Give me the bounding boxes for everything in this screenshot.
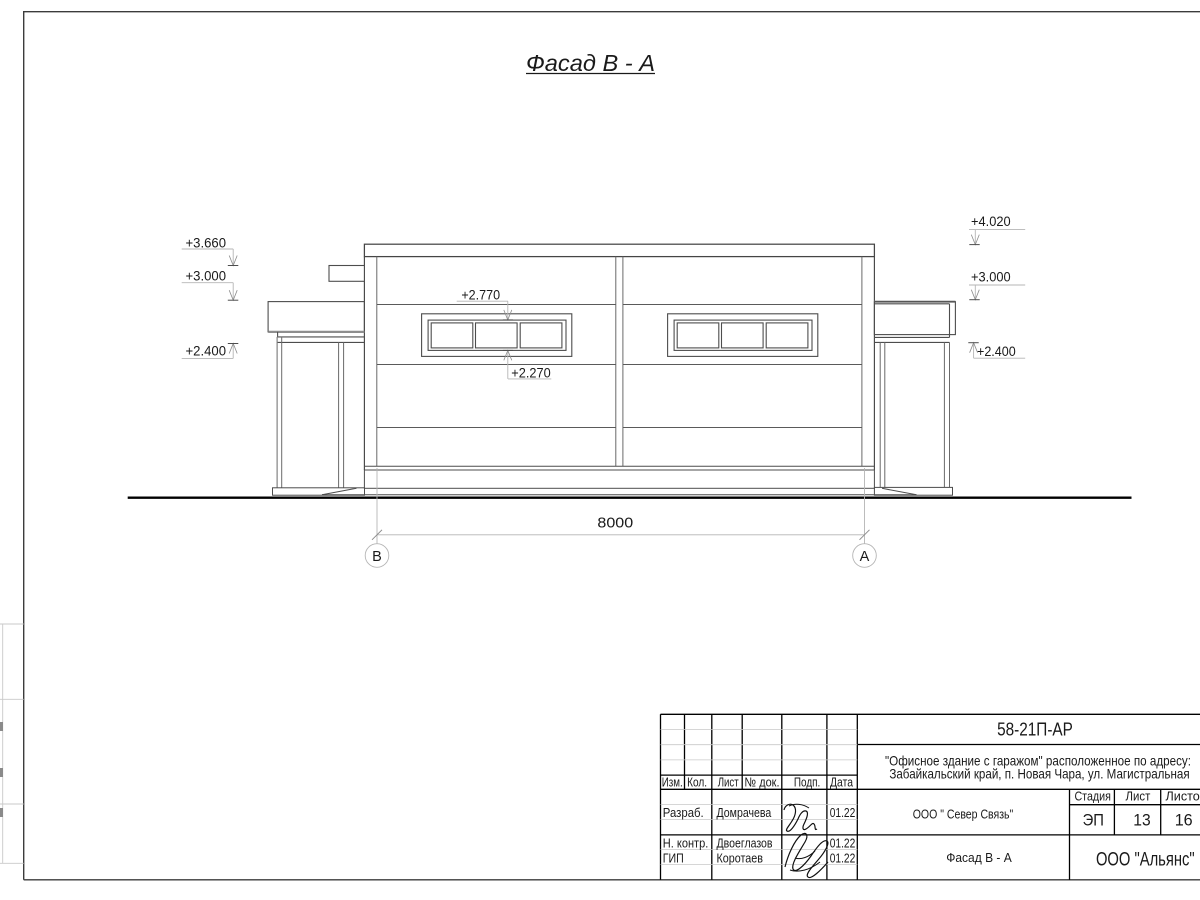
svg-text:Н. контр.: Н. контр. <box>663 836 709 851</box>
svg-text:Лист: Лист <box>1126 789 1151 804</box>
svg-text:А: А <box>860 549 870 565</box>
svg-text:01.22: 01.22 <box>830 805 856 820</box>
svg-text:01.22: 01.22 <box>830 851 856 866</box>
svg-text:+2.270: +2.270 <box>511 365 550 380</box>
svg-text:Домрачева: Домрачева <box>717 805 772 820</box>
svg-text:Кол.: Кол. <box>687 775 707 790</box>
svg-text:+2.770: +2.770 <box>461 287 500 302</box>
svg-text:Подп.: Подп. <box>794 775 820 790</box>
svg-text:Фасад В - А: Фасад В - А <box>526 50 655 76</box>
svg-text:Лист: Лист <box>718 775 739 790</box>
svg-text:13: 13 <box>1133 811 1150 829</box>
svg-text:№ док.: № док. <box>745 775 780 790</box>
svg-text:Дата: Дата <box>830 775 854 790</box>
svg-text:ООО "Альянс": ООО "Альянс" <box>1096 849 1195 870</box>
svg-text:Листов: Листов <box>1166 789 1200 804</box>
svg-text:16: 16 <box>1175 811 1193 829</box>
svg-text:Разраб.: Разраб. <box>663 805 704 820</box>
svg-text:Забайкальский край, п. Новая Ч: Забайкальский край, п. Новая Чара, ул. М… <box>889 766 1189 782</box>
svg-text:01.22: 01.22 <box>830 836 856 851</box>
svg-text:В: В <box>372 549 382 565</box>
svg-text:ЭП: ЭП <box>1083 811 1104 829</box>
svg-text:Стадия: Стадия <box>1074 789 1111 804</box>
svg-text:+2.400: +2.400 <box>977 344 1016 359</box>
svg-text:+3.000: +3.000 <box>186 269 227 284</box>
svg-text:+4.020: +4.020 <box>971 214 1011 229</box>
svg-text:Коротаев: Коротаев <box>717 851 764 866</box>
svg-text:+3.000: +3.000 <box>971 270 1011 285</box>
svg-text:ООО " Север Связь": ООО " Север Связь" <box>913 807 1014 822</box>
svg-text:8000: 8000 <box>597 515 633 532</box>
svg-text:Фасад В - А: Фасад В - А <box>946 850 1012 865</box>
svg-text:+2.400: +2.400 <box>186 343 227 358</box>
svg-text:+3.660: +3.660 <box>186 236 227 251</box>
svg-text:ГИП: ГИП <box>663 851 684 866</box>
svg-text:58-21П-АР: 58-21П-АР <box>997 720 1073 740</box>
svg-text:Двоеглазов: Двоеглазов <box>717 836 773 851</box>
svg-text:Изм.: Изм. <box>662 775 683 790</box>
